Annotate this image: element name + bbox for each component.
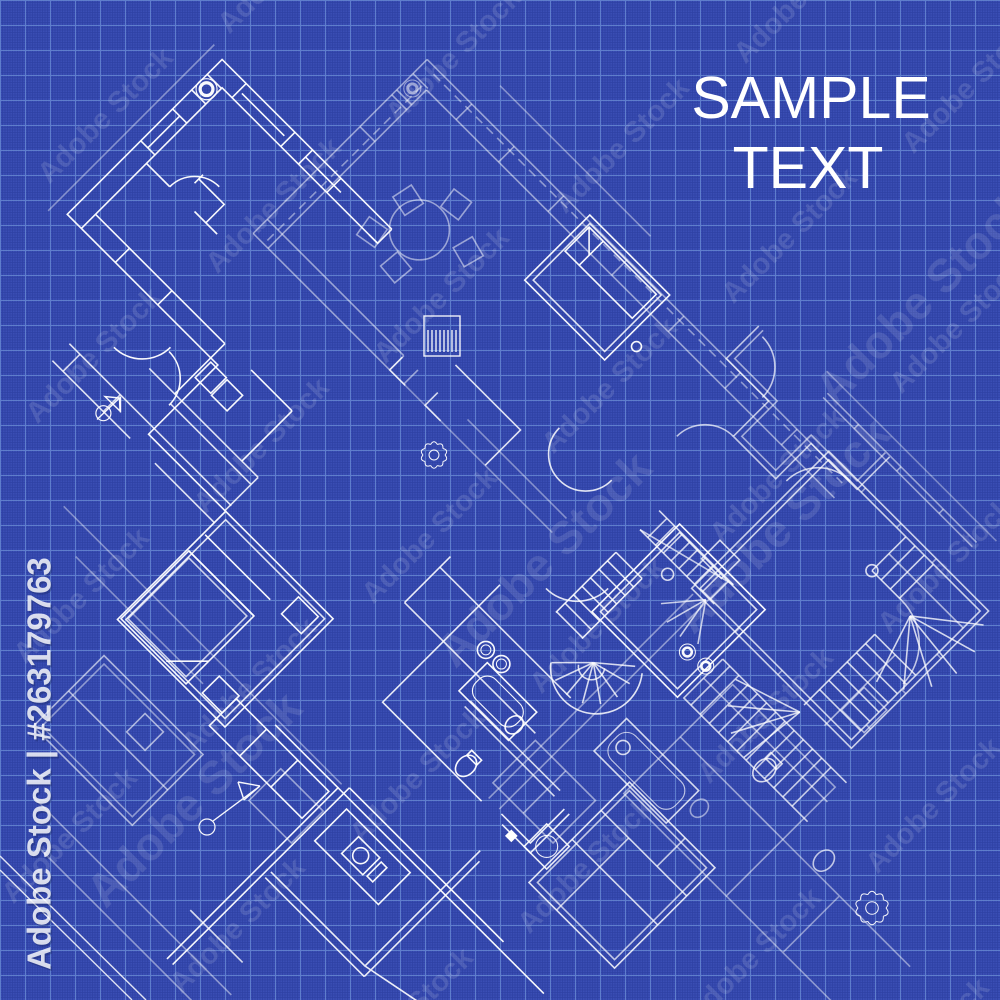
svg-text:TEXT: TEXT: [733, 135, 884, 201]
svg-text:SAMPLE: SAMPLE: [691, 65, 930, 131]
svg-text:Adobe Stock | #263179763: Adobe Stock | #263179763: [21, 557, 58, 970]
